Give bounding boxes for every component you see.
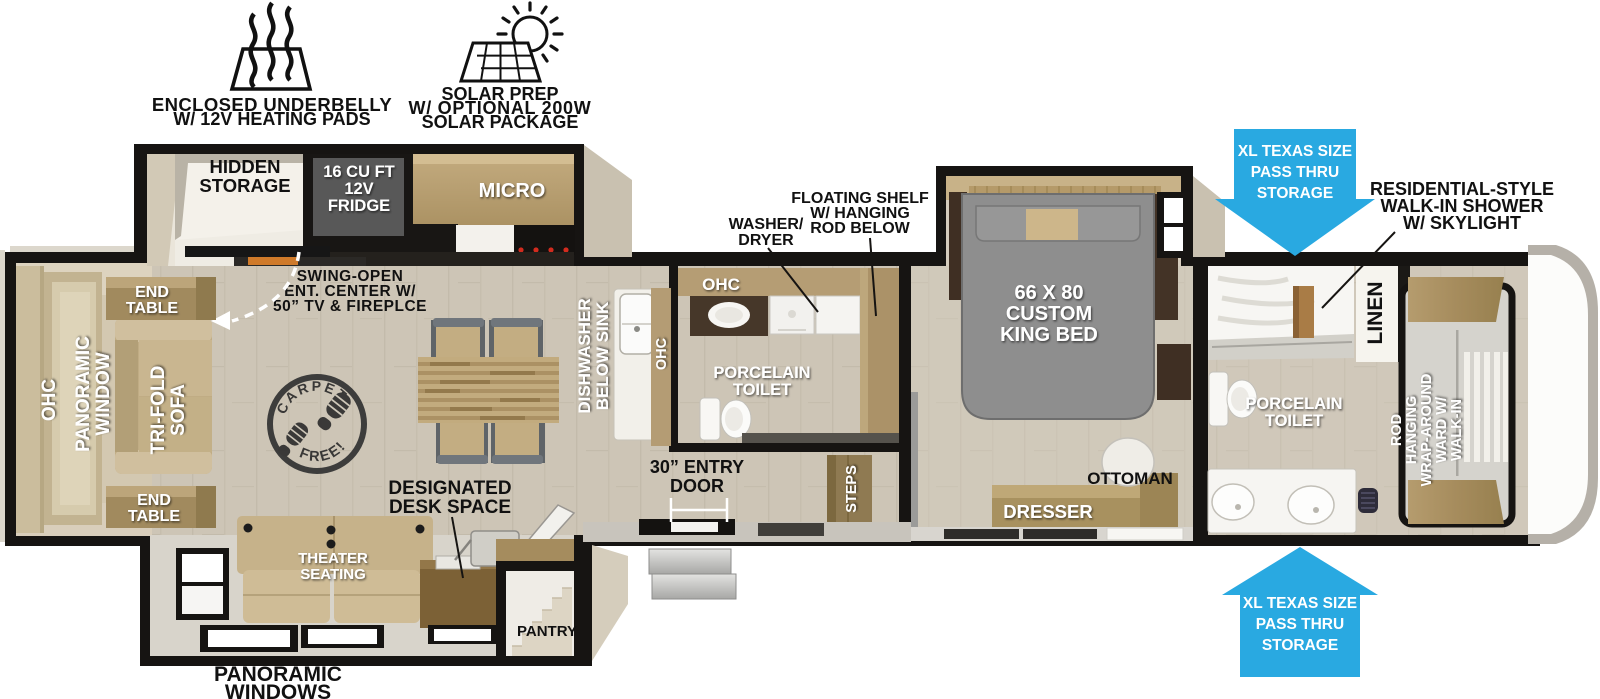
svg-text:BELOW SINK: BELOW SINK	[593, 301, 612, 410]
svg-text:PANTRY: PANTRY	[517, 623, 577, 640]
svg-text:WALK-IN: WALK-IN	[1449, 399, 1465, 461]
svg-text:TABLE: TABLE	[126, 300, 178, 317]
svg-text:SEATING: SEATING	[300, 566, 366, 583]
svg-text:HANGING: HANGING	[1404, 396, 1420, 464]
svg-text:DESIGNATED: DESIGNATED	[388, 478, 511, 499]
svg-text:XL TEXAS SIZE: XL TEXAS SIZE	[1238, 143, 1352, 160]
svg-text:END: END	[135, 284, 169, 301]
svg-text:ROD BELOW: ROD BELOW	[810, 220, 910, 237]
svg-text:WINDOWS: WINDOWS	[225, 681, 331, 699]
svg-text:FRIDGE: FRIDGE	[328, 197, 390, 215]
svg-text:66 X 80: 66 X 80	[1015, 282, 1084, 304]
svg-text:STORAGE: STORAGE	[1257, 185, 1333, 202]
svg-text:SOLAR PACKAGE: SOLAR PACKAGE	[422, 112, 579, 132]
svg-text:PORCELAIN: PORCELAIN	[1245, 395, 1342, 413]
svg-text:KING BED: KING BED	[1000, 324, 1098, 346]
svg-text:PORCELAIN: PORCELAIN	[713, 364, 810, 382]
svg-text:OHC: OHC	[654, 337, 670, 370]
svg-text:END: END	[137, 492, 171, 509]
svg-text:STEPS: STEPS	[844, 465, 860, 513]
svg-text:MICRO: MICRO	[479, 180, 546, 202]
svg-text:TRI-FOLD: TRI-FOLD	[148, 366, 169, 455]
svg-text:DOOR: DOOR	[670, 476, 724, 496]
svg-text:WARD W/: WARD W/	[1434, 397, 1450, 463]
svg-text:OHC: OHC	[702, 275, 740, 294]
svg-text:DRYER: DRYER	[738, 232, 794, 249]
svg-text:PASS THRU: PASS THRU	[1251, 164, 1339, 181]
svg-text:WRAP-AROUND: WRAP-AROUND	[1419, 374, 1435, 487]
svg-text:WASHER/: WASHER/	[729, 216, 804, 233]
svg-text:DISHWASHER: DISHWASHER	[575, 298, 594, 413]
svg-text:W/ 12V HEATING PADS: W/ 12V HEATING PADS	[173, 109, 370, 129]
svg-text:XL TEXAS SIZE: XL TEXAS SIZE	[1243, 595, 1357, 612]
svg-text:TOILET: TOILET	[733, 381, 791, 399]
svg-text:50” TV & FIREPLCE: 50” TV & FIREPLCE	[273, 298, 427, 315]
svg-text:HIDDEN: HIDDEN	[210, 156, 281, 177]
svg-text:DESK SPACE: DESK SPACE	[389, 497, 511, 518]
svg-text:TABLE: TABLE	[128, 508, 180, 525]
svg-text:ROD: ROD	[1389, 414, 1405, 446]
svg-text:OTTOMAN: OTTOMAN	[1087, 469, 1173, 488]
svg-text:STORAGE: STORAGE	[199, 175, 290, 196]
svg-text:30” ENTRY: 30” ENTRY	[650, 457, 744, 477]
svg-text:LINEN: LINEN	[1364, 282, 1387, 345]
svg-text:STORAGE: STORAGE	[1262, 637, 1338, 654]
svg-text:OHC: OHC	[39, 379, 60, 422]
svg-text:THEATER: THEATER	[298, 550, 368, 567]
svg-text:PANORAMIC: PANORAMIC	[73, 336, 94, 452]
svg-text:W/ SKYLIGHT: W/ SKYLIGHT	[1403, 213, 1521, 233]
svg-text:DRESSER: DRESSER	[1003, 501, 1092, 522]
svg-text:TOILET: TOILET	[1265, 412, 1323, 430]
svg-text:CUSTOM: CUSTOM	[1006, 303, 1092, 325]
svg-text:SOFA: SOFA	[168, 384, 189, 436]
svg-text:PASS THRU: PASS THRU	[1256, 616, 1344, 633]
svg-text:16 CU FT: 16 CU FT	[323, 163, 395, 181]
svg-text:12V: 12V	[344, 180, 373, 198]
svg-text:WINDOW: WINDOW	[93, 352, 114, 435]
